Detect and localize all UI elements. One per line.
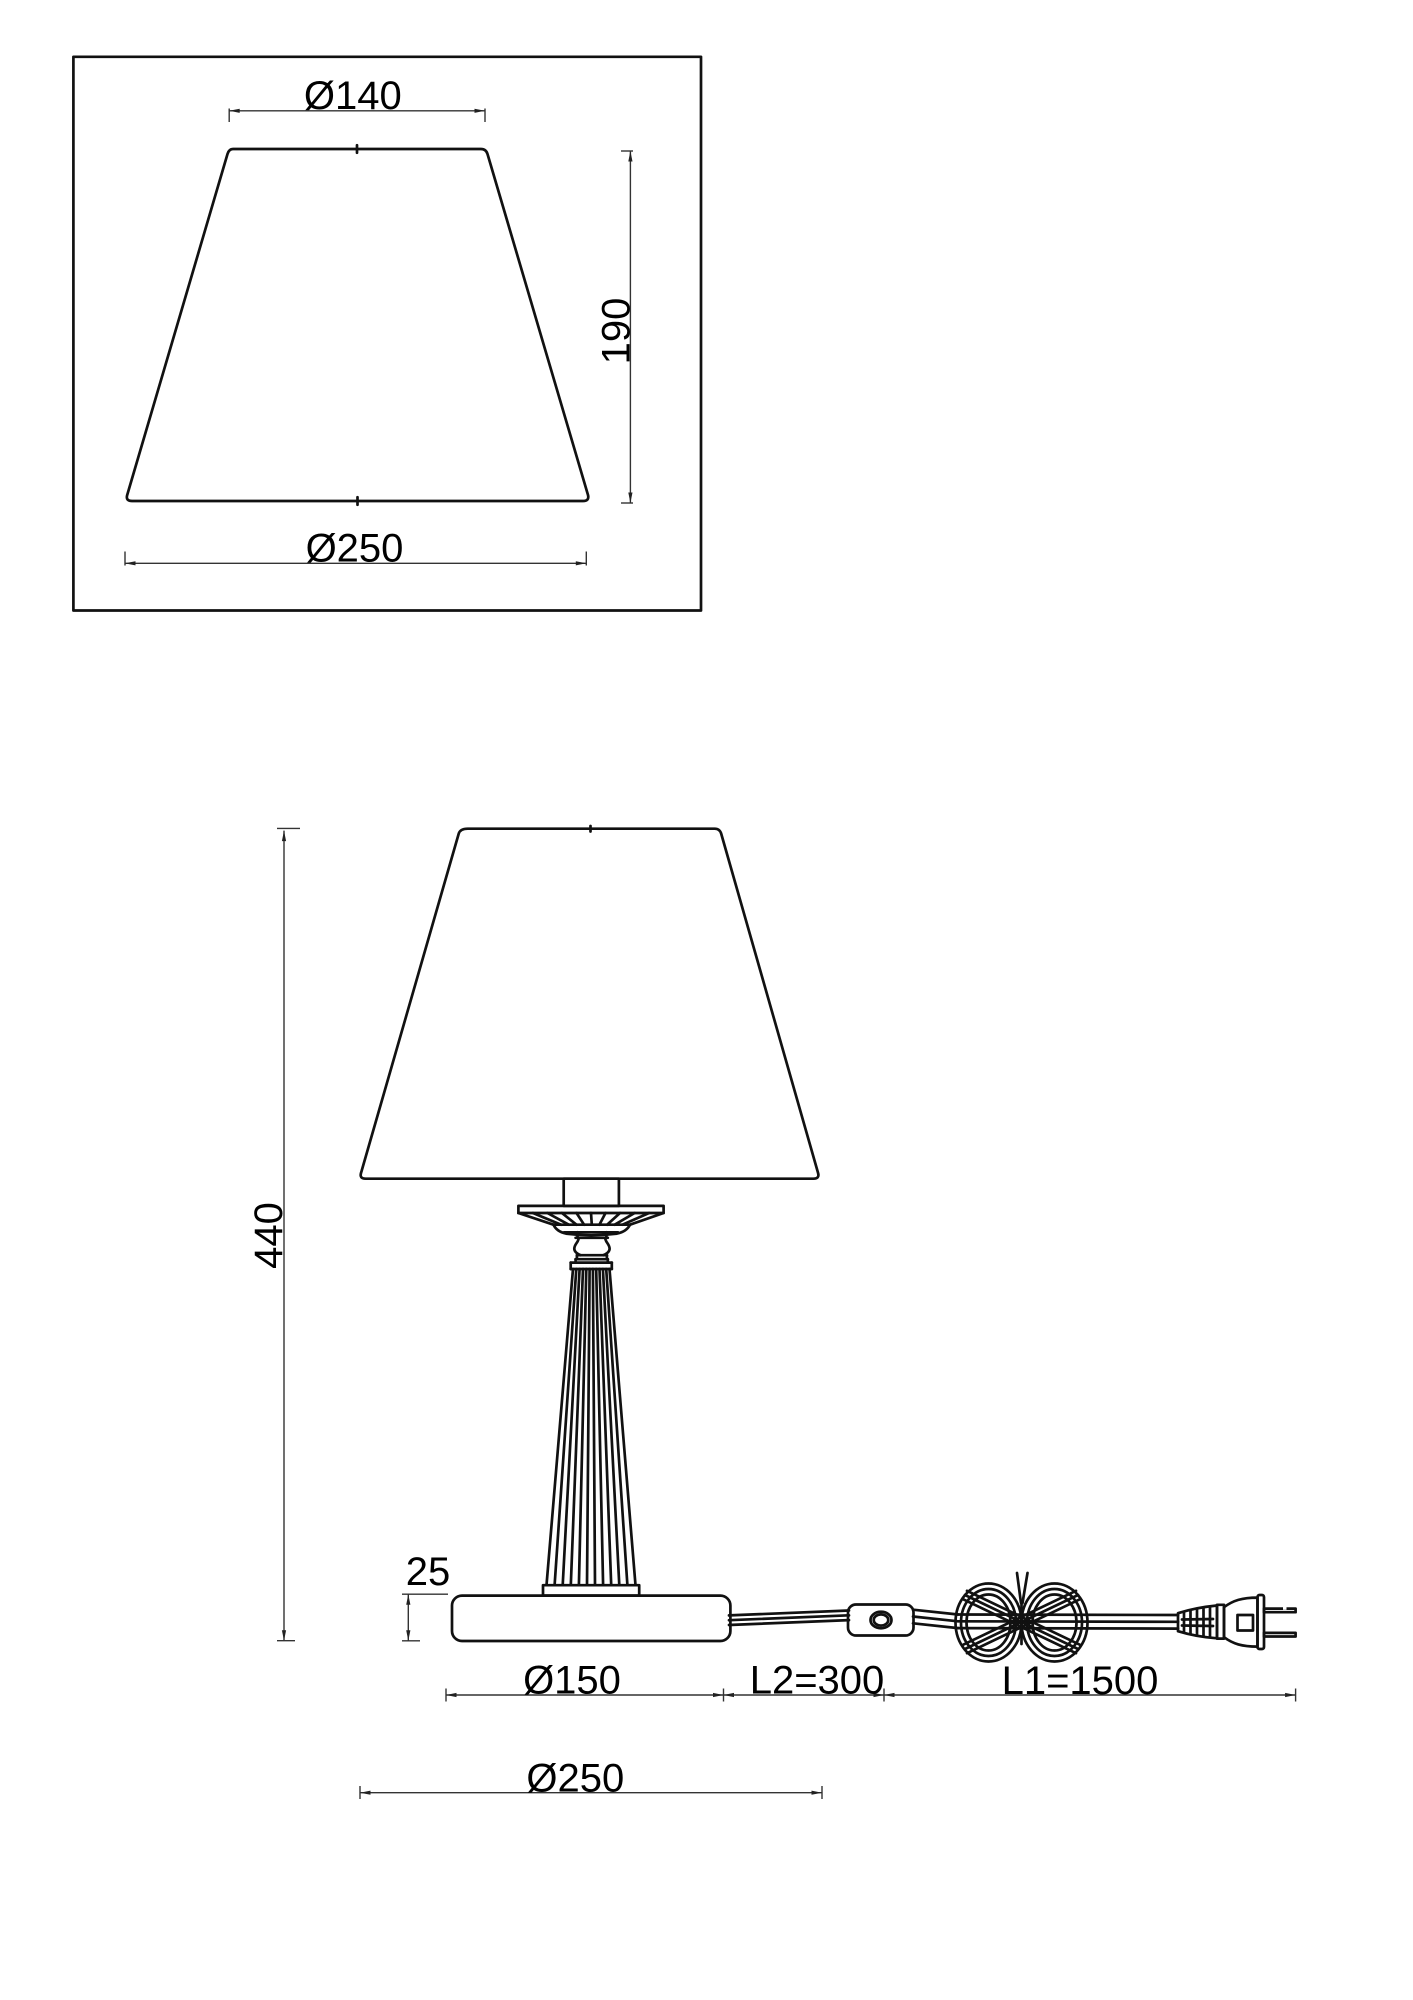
svg-text:190: 190 <box>595 298 639 365</box>
svg-text:L1=1500: L1=1500 <box>1002 1659 1159 1703</box>
svg-text:25: 25 <box>406 1550 451 1594</box>
svg-text:L2=300: L2=300 <box>750 1659 885 1703</box>
svg-text:Ø250: Ø250 <box>526 1757 624 1801</box>
svg-text:Ø150: Ø150 <box>523 1659 621 1703</box>
svg-text:Ø250: Ø250 <box>306 527 404 571</box>
svg-text:440: 440 <box>247 1202 291 1269</box>
svg-text:Ø140: Ø140 <box>304 74 402 118</box>
